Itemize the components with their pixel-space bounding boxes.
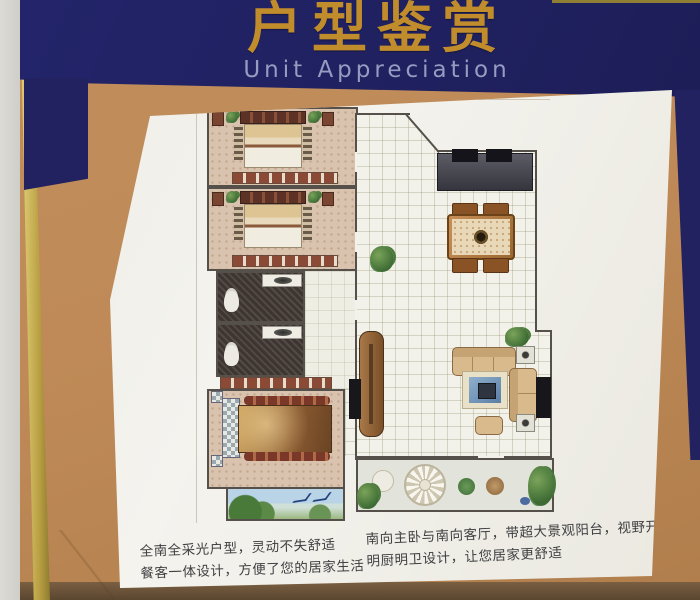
wardrobe-icon xyxy=(212,192,224,206)
dresser-icon xyxy=(232,172,338,184)
plant-icon xyxy=(505,327,529,347)
wall xyxy=(535,150,537,332)
plant-icon xyxy=(528,466,554,506)
bed-bolster-icon xyxy=(244,452,330,461)
caption-right: 南向主卧与南向客厅，带超大景观阳台，视野开阔 明厨明卫设计，让您居家更舒适 xyxy=(365,515,675,572)
floor-medallion-center xyxy=(419,479,431,491)
floor-circle-icon xyxy=(486,477,504,495)
wardrobe-icon xyxy=(322,192,334,206)
plant-icon xyxy=(226,191,238,203)
sink-basin-icon xyxy=(274,277,292,284)
door-opening xyxy=(355,300,357,320)
page-title: 户型鉴赏 xyxy=(20,0,700,56)
chair-icon xyxy=(452,258,478,273)
bed-bolster-icon xyxy=(244,396,330,405)
wall xyxy=(355,113,410,115)
flower-icon xyxy=(520,497,530,505)
plant-icon xyxy=(357,483,379,509)
bed-icon xyxy=(244,124,302,168)
caption-left: 全南全采光户型，灵动不失舒适 餐客一体设计，方便了您的居家生活 xyxy=(139,533,364,585)
wardrobe-icon xyxy=(322,112,334,126)
cabinet-icon xyxy=(536,377,551,418)
tv-cabinet-slot xyxy=(369,344,373,424)
banner-right-wrap xyxy=(668,90,700,460)
plant-icon xyxy=(226,111,238,123)
header-banner: 户型鉴赏 Unit Appreciation xyxy=(20,0,700,97)
bed-icon xyxy=(244,204,302,248)
door-opening xyxy=(355,232,357,252)
chair-icon xyxy=(483,258,509,273)
left-wall-strip xyxy=(0,0,20,600)
plant-icon xyxy=(370,246,394,272)
coffee-table-icon xyxy=(478,383,496,399)
banner-left-wrap xyxy=(24,78,88,190)
wardrobe-icon xyxy=(212,112,224,126)
nightstand-icon xyxy=(234,206,243,240)
corridor-floor xyxy=(305,271,356,389)
centerpiece-icon xyxy=(471,228,491,246)
bed-icon xyxy=(240,191,306,204)
page-subtitle: Unit Appreciation xyxy=(20,57,700,83)
side-table-icon xyxy=(516,414,535,432)
dimension-line xyxy=(196,108,197,523)
toilet-icon xyxy=(224,345,239,366)
nightstand-icon xyxy=(303,126,312,160)
stove-icon xyxy=(486,149,512,162)
dresser-icon xyxy=(232,255,338,267)
stove-icon xyxy=(452,149,478,162)
dimension-line xyxy=(205,99,550,100)
side-table-icon xyxy=(516,346,535,364)
plant-icon xyxy=(308,111,320,123)
sink-basin-icon xyxy=(274,329,292,336)
nightstand-icon xyxy=(303,206,312,240)
toilet-icon xyxy=(224,291,239,312)
door-opening xyxy=(355,152,357,172)
bed-icon xyxy=(240,111,306,124)
floor-circle-icon xyxy=(458,478,475,495)
dresser-icon xyxy=(220,377,332,389)
photo-of-display-board: 户型鉴赏 Unit Appreciation xyxy=(0,0,700,600)
armchair-icon xyxy=(475,416,503,435)
bed-icon xyxy=(238,405,332,453)
tv-icon xyxy=(349,379,361,419)
header-gold-topline xyxy=(552,0,700,3)
nightstand-icon xyxy=(234,126,243,160)
plant-icon xyxy=(308,191,320,203)
